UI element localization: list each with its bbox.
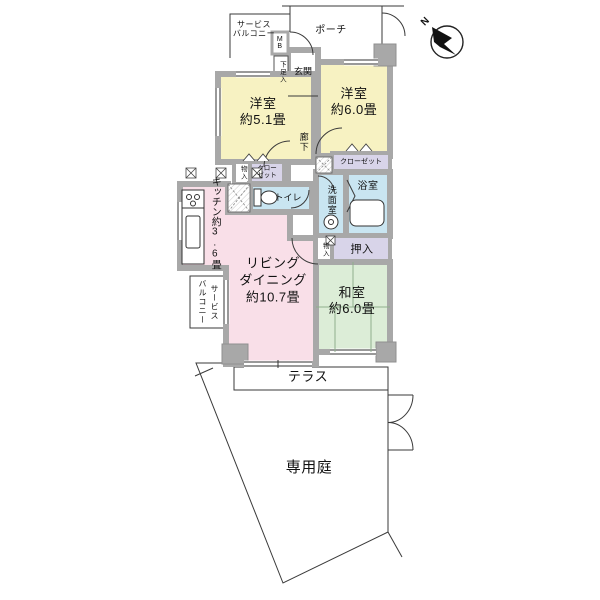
floorplan-page: サービス バルコニー ポーチ M B 下足入 玄関 洋室 約5.1畳 洋室 約6…	[0, 0, 600, 600]
bathroom-label: 浴室	[358, 181, 379, 193]
private-garden-label: 専用庭	[286, 459, 333, 477]
terrace-label: テラス	[288, 369, 328, 385]
kitchen-label: キッチン約3.6畳	[209, 177, 220, 270]
stove-burner-icon	[187, 195, 192, 200]
meter-box-label: M B	[277, 36, 283, 50]
western-room-6-0-label: 洋室 約6.0畳	[331, 86, 378, 118]
pipe-space-washroom	[316, 157, 332, 173]
meter-symbol-icon	[186, 168, 196, 178]
service-balcony-top-label: サービス バルコニー	[233, 20, 275, 38]
wall-block-southeast	[376, 342, 396, 362]
japanese-room-label: 和室 約6.0畳	[329, 285, 376, 317]
storage-right-label: 物入	[321, 243, 328, 258]
porch-label: ポーチ	[315, 25, 347, 37]
living-dining-label: リビング ダイニング 約10.7畳	[239, 256, 307, 307]
western-room-5-1-label: 洋室 約5.1畳	[240, 96, 287, 128]
stove-burner-icon	[191, 201, 196, 206]
washing-machine-icon	[324, 215, 338, 229]
storage-left-label: 物入	[239, 166, 246, 181]
toilet-label: トイレ	[274, 193, 301, 204]
closet-right-label: クローゼット	[340, 159, 382, 168]
window-western-5-1-north	[236, 71, 270, 78]
porch-gate-door-arc	[382, 13, 405, 36]
kitchen-sink-icon	[186, 216, 200, 248]
garden-gate-top-arc	[388, 395, 413, 423]
compass-arrow-icon	[432, 27, 456, 55]
boundary-tick-right	[388, 532, 402, 557]
washroom-label: 洗面室	[326, 185, 335, 215]
window-japanese-south	[330, 349, 376, 356]
window-living-south	[244, 360, 312, 368]
boundary-tick-left	[195, 368, 213, 376]
entrance-label: 玄関	[294, 67, 312, 78]
window-living-west	[223, 280, 230, 324]
stove-burner-icon	[195, 195, 200, 200]
closet-left-label: クロー ゼット	[257, 165, 277, 179]
shoe-box-label: 下足入	[278, 61, 285, 84]
pipe-space-kitchen	[228, 184, 250, 212]
service-balcony-left-label: サービス バルコニー	[196, 280, 220, 325]
compass	[431, 26, 463, 58]
window-western-5-1-west	[215, 88, 222, 136]
kitchen-counter	[182, 190, 204, 264]
corridor-label: 廊下	[298, 132, 307, 152]
garden-gate-bottom-arc	[388, 423, 413, 451]
oshiire-label: 押入	[351, 243, 374, 256]
bathtub-icon	[350, 200, 384, 226]
window-western-6-0-north	[344, 59, 378, 66]
